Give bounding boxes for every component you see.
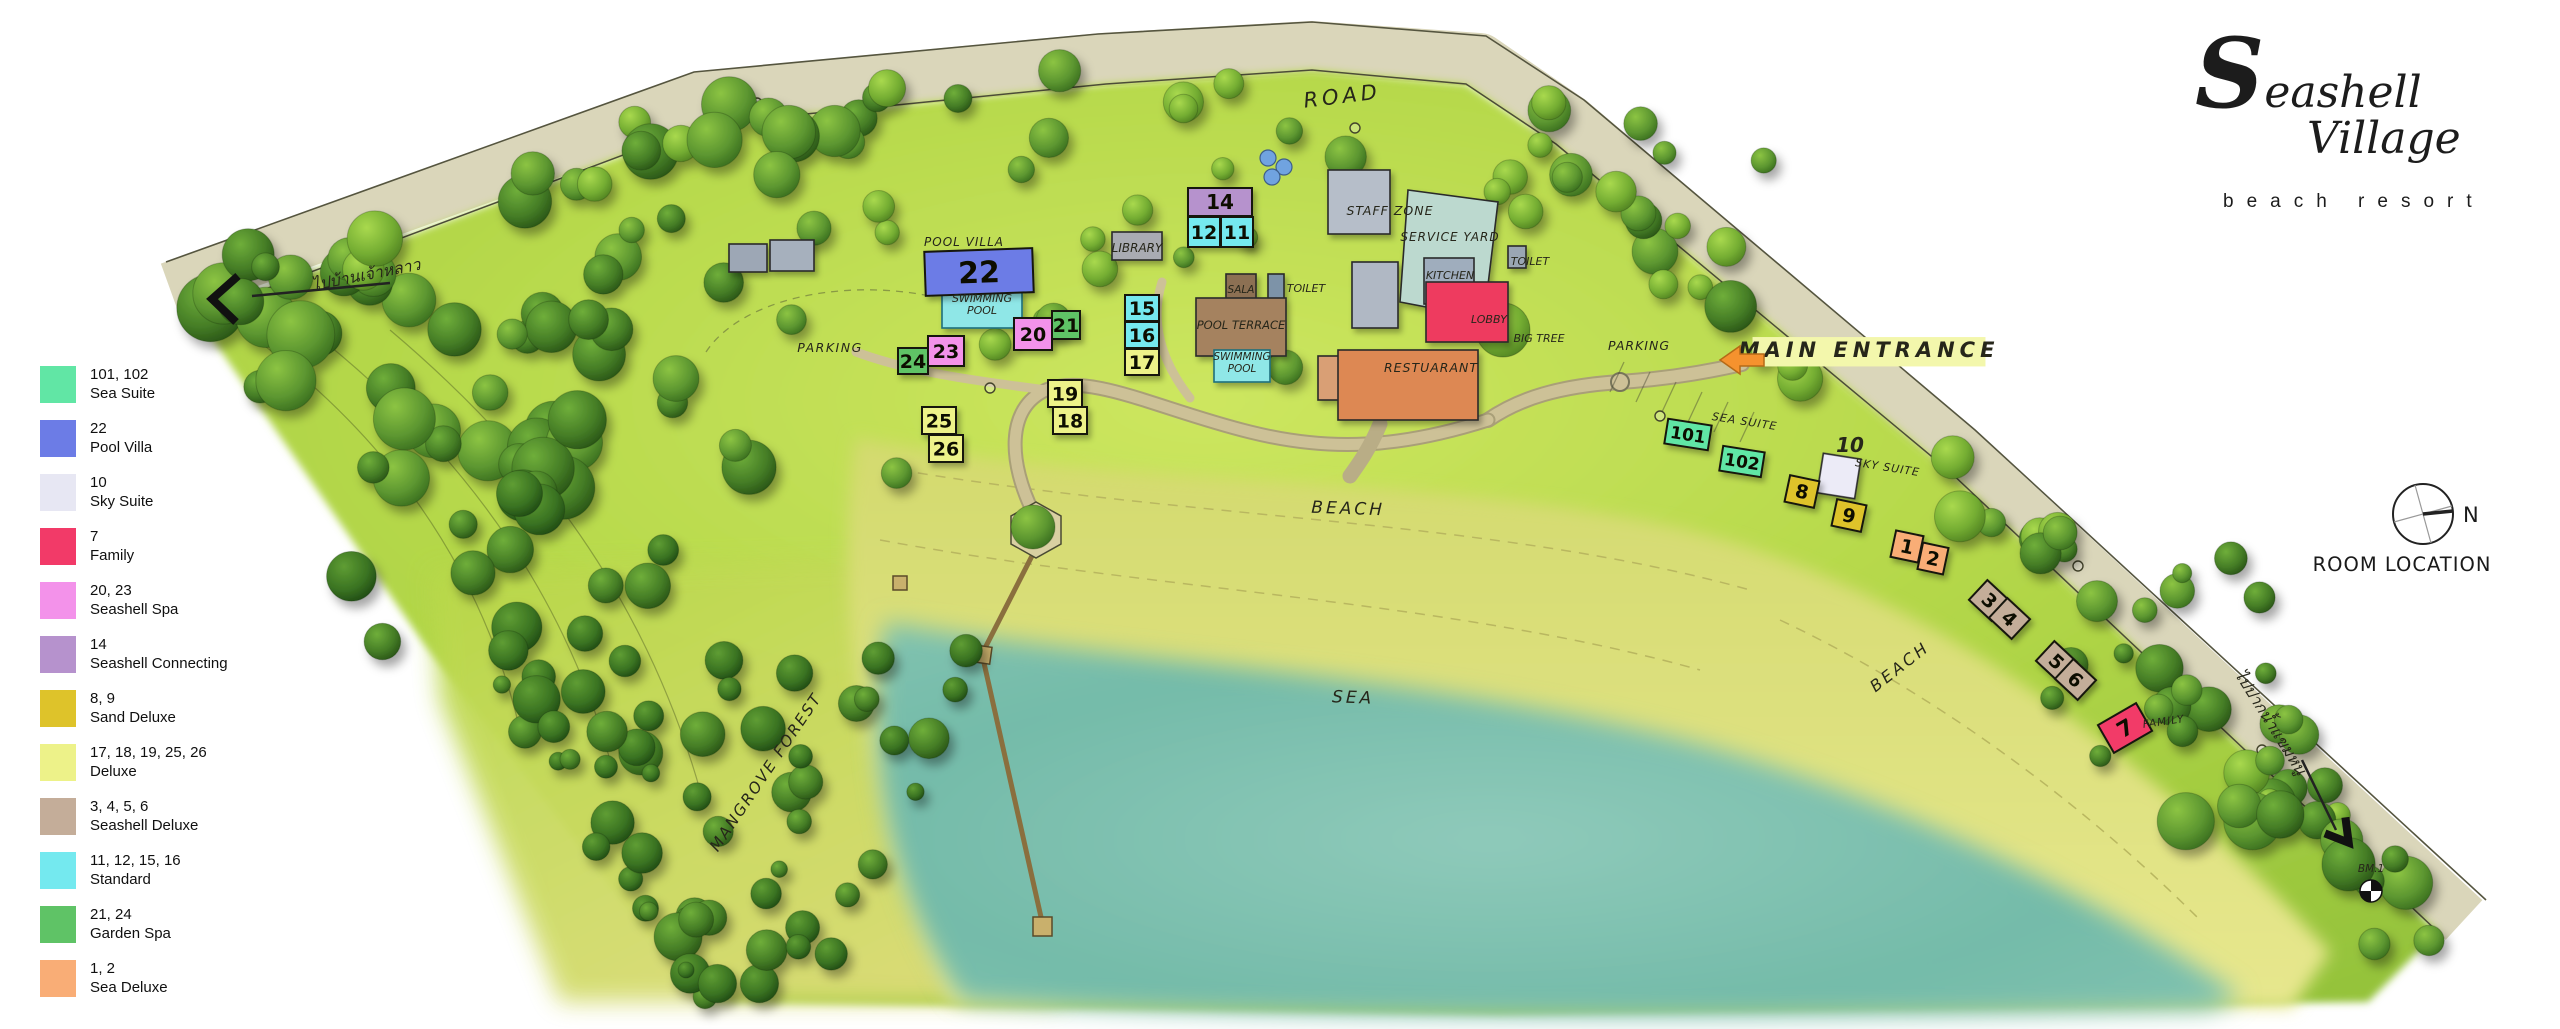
svg-text:POOL TERRACE: POOL TERRACE bbox=[1197, 318, 1286, 332]
tree bbox=[907, 783, 924, 800]
legend-item-sand-deluxe: 8, 9Sand Deluxe bbox=[40, 690, 228, 727]
tree bbox=[786, 935, 811, 960]
legend-room-numbers: 3, 4, 5, 6 bbox=[90, 798, 198, 817]
tree bbox=[489, 631, 529, 671]
legend-swatch bbox=[40, 636, 76, 673]
legend-room-type: Sea Suite bbox=[90, 385, 155, 404]
tree bbox=[642, 764, 660, 782]
room-number-label: 20 bbox=[1020, 324, 1046, 346]
legend-room-numbers: 1, 2 bbox=[90, 960, 168, 979]
svg-text:MAIN ENTRANCE: MAIN ENTRANCE bbox=[1739, 338, 2000, 362]
tree bbox=[358, 452, 390, 484]
tree bbox=[648, 535, 679, 566]
tree bbox=[569, 300, 609, 340]
label-toilet-west: TOILET bbox=[1287, 282, 1327, 295]
tree bbox=[1169, 94, 1198, 123]
room-25: 25 bbox=[922, 407, 956, 434]
label-pool-terrace: POOL TERRACE bbox=[1197, 318, 1286, 332]
room-1: 1 bbox=[1890, 530, 1923, 562]
tree bbox=[1665, 213, 1691, 239]
room-12: 12 bbox=[1188, 217, 1220, 247]
tree bbox=[1276, 118, 1302, 144]
label-pool-villa: POOL VILLA bbox=[924, 235, 1004, 249]
tree bbox=[2215, 542, 2248, 575]
legend: 101, 102Sea Suite22Pool Villa10Sky Suite… bbox=[40, 366, 228, 1014]
label-sea: SEA bbox=[1332, 687, 1375, 708]
tree bbox=[687, 112, 742, 167]
room-number-label: 26 bbox=[933, 438, 959, 460]
legend-swatch bbox=[40, 852, 76, 889]
tree bbox=[577, 167, 612, 202]
tree bbox=[1081, 227, 1106, 252]
legend-swatch bbox=[40, 528, 76, 565]
room-number-label: 12 bbox=[1191, 222, 1217, 244]
tree bbox=[327, 552, 377, 602]
tree bbox=[2041, 686, 2064, 709]
tree bbox=[493, 676, 510, 693]
room-17: 17 bbox=[1125, 349, 1159, 375]
tree bbox=[2307, 768, 2342, 803]
legend-room-type: Family bbox=[90, 547, 134, 566]
map-caption: ROOM LOCATION bbox=[2313, 553, 2492, 576]
tree bbox=[511, 152, 554, 195]
svg-text:SEA: SEA bbox=[1332, 687, 1375, 708]
room-number-label: 23 bbox=[933, 341, 959, 363]
tree bbox=[657, 205, 685, 233]
resort-map-page: 2224232021191825261412111516171011028912… bbox=[0, 0, 2560, 1029]
room-18: 18 bbox=[1053, 407, 1087, 434]
room-number-label: 18 bbox=[1057, 410, 1083, 432]
room-15: 15 bbox=[1125, 295, 1159, 321]
svg-text:LOBBY: LOBBY bbox=[1471, 313, 1508, 326]
legend-item-family: 7Family bbox=[40, 528, 228, 565]
tree bbox=[2114, 644, 2133, 663]
tree bbox=[548, 391, 606, 449]
svg-text:SALA: SALA bbox=[1228, 284, 1255, 296]
tree bbox=[2172, 675, 2203, 706]
room-number-label: 19 bbox=[1052, 383, 1078, 405]
tree bbox=[979, 329, 1011, 361]
facility-restaurant-annex bbox=[1318, 356, 1340, 400]
tree bbox=[451, 551, 495, 595]
tree bbox=[854, 687, 879, 712]
tree bbox=[1508, 194, 1543, 229]
tree bbox=[2173, 564, 2192, 583]
tree bbox=[683, 783, 711, 811]
tree bbox=[584, 255, 623, 294]
legend-room-type: Seashell Connecting bbox=[90, 655, 228, 674]
legend-swatch bbox=[40, 798, 76, 835]
tree bbox=[497, 319, 527, 349]
room-number-label: 25 bbox=[926, 410, 952, 432]
svg-text:PARKING: PARKING bbox=[1608, 338, 1670, 353]
driveway-circle bbox=[1611, 373, 1629, 391]
label-parking-east: PARKING bbox=[1608, 338, 1670, 353]
tree bbox=[1653, 141, 1676, 164]
room-16: 16 bbox=[1125, 322, 1159, 348]
tree bbox=[1039, 50, 1081, 92]
tree bbox=[2257, 791, 2304, 838]
tree bbox=[567, 616, 603, 652]
legend-item-seashell-connecting: 14Seashell Connecting bbox=[40, 636, 228, 673]
room-24: 24 bbox=[898, 348, 928, 374]
tree bbox=[560, 749, 580, 769]
facility-lobby bbox=[1426, 282, 1508, 342]
tree bbox=[678, 962, 694, 978]
tree bbox=[1931, 436, 1974, 479]
tree bbox=[754, 152, 800, 198]
tree bbox=[2255, 663, 2276, 684]
room-20: 20 bbox=[1014, 318, 1052, 350]
svg-text:POOL VILLA: POOL VILLA bbox=[924, 235, 1004, 249]
tree bbox=[862, 642, 894, 674]
tree bbox=[1029, 118, 1068, 157]
legend-swatch bbox=[40, 420, 76, 457]
label-lobby: LOBBY bbox=[1471, 313, 1508, 326]
tree bbox=[256, 351, 316, 411]
tree bbox=[347, 211, 402, 266]
legend-swatch bbox=[40, 906, 76, 943]
tree bbox=[526, 301, 577, 352]
svg-text:TOILET: TOILET bbox=[1511, 255, 1551, 268]
tree bbox=[252, 253, 280, 281]
room-23: 23 bbox=[928, 336, 964, 366]
room-number-label: 17 bbox=[1129, 352, 1155, 374]
legend-swatch bbox=[40, 960, 76, 997]
tree bbox=[625, 563, 670, 608]
logo-wordmark-village: Village bbox=[2307, 117, 2535, 161]
resort-logo: Seashell Village beach resort bbox=[2195, 48, 2535, 213]
tree bbox=[1596, 171, 1637, 212]
tree bbox=[2090, 745, 2111, 766]
room-number-label: 21 bbox=[1053, 315, 1079, 337]
tree bbox=[771, 861, 788, 878]
label-parking-west: PARKING bbox=[797, 340, 863, 355]
label-restaurant: RESTUARANT bbox=[1384, 360, 1478, 375]
tree bbox=[815, 938, 847, 970]
tree bbox=[1649, 270, 1678, 299]
deck-tree bbox=[1011, 505, 1055, 549]
tree bbox=[950, 634, 983, 667]
legend-swatch bbox=[40, 582, 76, 619]
facility-storage-a bbox=[729, 244, 767, 272]
tree bbox=[622, 131, 661, 170]
legend-item-standard: 11, 12, 15, 16Standard bbox=[40, 852, 228, 889]
room-11: 11 bbox=[1221, 217, 1253, 247]
room-22: 22 bbox=[924, 248, 1033, 296]
svg-text:TOILET: TOILET bbox=[1287, 282, 1327, 295]
facility-back-of-house bbox=[1352, 262, 1398, 328]
label-toilet-east: TOILET bbox=[1511, 255, 1551, 268]
legend-room-numbers: 11, 12, 15, 16 bbox=[90, 852, 181, 871]
tree bbox=[1173, 247, 1194, 268]
legend-room-numbers: 8, 9 bbox=[90, 690, 176, 709]
label-main-entrance: MAIN ENTRANCE bbox=[1739, 337, 2000, 366]
compass-north-label: N bbox=[2463, 503, 2479, 527]
tree bbox=[582, 833, 610, 861]
room-9: 9 bbox=[1832, 499, 1867, 532]
tree bbox=[1707, 227, 1746, 266]
label-beach-central: BEACH bbox=[1311, 498, 1385, 521]
room-102: 102 bbox=[1719, 446, 1764, 477]
tree bbox=[561, 670, 605, 714]
legend-room-numbers: 7 bbox=[90, 528, 134, 547]
svg-text:RESTUARANT: RESTUARANT bbox=[1384, 360, 1478, 375]
room-19: 19 bbox=[1048, 380, 1082, 407]
label-library: LIBRARY bbox=[1112, 241, 1164, 255]
tree bbox=[776, 655, 812, 691]
tree bbox=[777, 305, 807, 335]
tree bbox=[909, 718, 950, 759]
tree bbox=[2244, 582, 2275, 613]
tree bbox=[680, 712, 725, 757]
label-service-yard: SERVICE YARD bbox=[1400, 230, 1499, 244]
tree bbox=[2043, 516, 2077, 550]
tree bbox=[789, 765, 823, 799]
legend-item-deluxe: 17, 18, 19, 25, 26Deluxe bbox=[40, 744, 228, 781]
tree bbox=[746, 930, 787, 971]
logo-tagline: beach resort bbox=[2223, 191, 2535, 213]
room-14: 14 bbox=[1188, 188, 1252, 216]
tree bbox=[497, 471, 543, 517]
legend-swatch bbox=[40, 474, 76, 511]
label-kitchen: KITCHEN bbox=[1426, 269, 1474, 282]
tree bbox=[836, 883, 860, 907]
legend-room-numbers: 101, 102 bbox=[90, 366, 155, 385]
tree bbox=[472, 375, 508, 411]
tree bbox=[595, 755, 618, 778]
facility-staff-zone-building bbox=[1328, 170, 1390, 234]
tree bbox=[1008, 156, 1034, 182]
svg-text:BEACH: BEACH bbox=[1311, 498, 1385, 521]
legend-item-seashell-deluxe: 3, 4, 5, 6Seashell Deluxe bbox=[40, 798, 228, 835]
tree bbox=[538, 711, 570, 743]
legend-swatch bbox=[40, 366, 76, 403]
tree bbox=[1935, 491, 1986, 542]
tree bbox=[943, 677, 968, 702]
legend-room-numbers: 10 bbox=[90, 474, 153, 493]
legend-room-type: Standard bbox=[90, 871, 181, 890]
svg-text:BM.1: BM.1 bbox=[2358, 863, 2384, 875]
tree bbox=[863, 191, 895, 223]
tree bbox=[719, 429, 751, 461]
room-21: 21 bbox=[1052, 311, 1080, 339]
room-number-label: 11 bbox=[1224, 222, 1250, 244]
room-26: 26 bbox=[929, 435, 963, 462]
svg-text:LIBRARY: LIBRARY bbox=[1112, 241, 1164, 255]
tree bbox=[787, 809, 812, 834]
tree bbox=[2132, 598, 2157, 623]
tree bbox=[718, 677, 741, 700]
tree bbox=[944, 85, 972, 113]
tree bbox=[2359, 928, 2390, 959]
tree bbox=[1751, 148, 1776, 173]
legend-room-numbers: 21, 24 bbox=[90, 906, 171, 925]
site-plan-map: 2224232021191825261412111516171011028912… bbox=[0, 0, 2560, 1029]
benchmark-icon bbox=[2360, 880, 2382, 902]
tree bbox=[1212, 158, 1234, 180]
svg-text:10: 10 bbox=[1836, 433, 1864, 457]
tree bbox=[1122, 195, 1152, 225]
svg-text:SERVICE YARD: SERVICE YARD bbox=[1400, 230, 1499, 244]
legend-room-numbers: 22 bbox=[90, 420, 152, 439]
legend-room-type: Pool Villa bbox=[90, 439, 152, 458]
tree bbox=[634, 701, 664, 731]
tree bbox=[2414, 925, 2444, 955]
legend-room-type: Deluxe bbox=[90, 763, 207, 782]
logo-wordmark-seashell: Seashell bbox=[2195, 48, 2535, 115]
tree bbox=[880, 726, 909, 755]
tree bbox=[587, 711, 628, 752]
tree bbox=[1552, 162, 1582, 192]
tree bbox=[705, 642, 743, 680]
room-number-label: 24 bbox=[900, 351, 926, 373]
tree bbox=[698, 964, 736, 1002]
tree bbox=[428, 303, 481, 356]
tree bbox=[622, 833, 663, 874]
legend-room-type: Seashell Deluxe bbox=[90, 817, 198, 836]
label-benchmark: BM.1 bbox=[2358, 863, 2384, 875]
room-8: 8 bbox=[1785, 475, 1820, 508]
tree bbox=[2077, 581, 2118, 622]
legend-room-numbers: 14 bbox=[90, 636, 228, 655]
legend-room-type: Seashell Spa bbox=[90, 601, 178, 620]
facility-storage-b bbox=[770, 240, 814, 271]
legend-item-sky-suite: 10Sky Suite bbox=[40, 474, 228, 511]
tree bbox=[2382, 846, 2409, 873]
legend-room-numbers: 17, 18, 19, 25, 26 bbox=[90, 744, 207, 763]
legend-swatch bbox=[40, 744, 76, 781]
tree bbox=[2157, 793, 2214, 850]
room-number-label: 16 bbox=[1129, 325, 1155, 347]
legend-swatch bbox=[40, 690, 76, 727]
tree bbox=[639, 902, 658, 921]
tree bbox=[1624, 107, 1658, 141]
tree bbox=[868, 70, 905, 107]
legend-item-sea-suite: 101, 102Sea Suite bbox=[40, 366, 228, 403]
tree bbox=[373, 388, 435, 450]
tree bbox=[609, 645, 641, 677]
tree bbox=[619, 217, 644, 242]
label-big-tree: BIG TREE bbox=[1513, 332, 1564, 345]
legend-room-type: Sea Deluxe bbox=[90, 979, 168, 998]
legend-room-type: Sand Deluxe bbox=[90, 709, 176, 728]
legend-room-type: Sky Suite bbox=[90, 493, 153, 512]
legend-item-seashell-spa: 20, 23Seashell Spa bbox=[40, 582, 228, 619]
room-2: 2 bbox=[1917, 543, 1948, 575]
legend-item-sea-deluxe: 1, 2Sea Deluxe bbox=[40, 960, 228, 997]
tree bbox=[364, 623, 401, 660]
svg-text:PARKING: PARKING bbox=[797, 340, 863, 355]
facility-sky-suite-building bbox=[1817, 453, 1861, 498]
tree bbox=[751, 878, 782, 909]
tree bbox=[1528, 133, 1553, 158]
svg-text:KITCHEN: KITCHEN bbox=[1426, 269, 1474, 282]
room-number-label: 22 bbox=[958, 255, 1001, 291]
compass: N ROOM LOCATION bbox=[2313, 484, 2492, 576]
legend-item-pool-villa: 22Pool Villa bbox=[40, 420, 228, 457]
label-sala: SALA bbox=[1228, 284, 1255, 296]
svg-text:BIG TREE: BIG TREE bbox=[1513, 332, 1564, 345]
room-number-label: 15 bbox=[1129, 298, 1155, 320]
room-number-label: 14 bbox=[1206, 190, 1234, 214]
tree bbox=[2218, 784, 2262, 828]
svg-text:STAFF ZONE: STAFF ZONE bbox=[1347, 203, 1434, 218]
tree bbox=[1532, 86, 1566, 120]
tree bbox=[588, 568, 623, 603]
tree bbox=[881, 458, 912, 489]
label-room-10-number: 10 bbox=[1836, 433, 1864, 457]
tree bbox=[653, 356, 699, 402]
tree bbox=[875, 220, 899, 244]
tree bbox=[1214, 69, 1244, 99]
legend-room-numbers: 20, 23 bbox=[90, 582, 178, 601]
legend-room-type: Garden Spa bbox=[90, 925, 171, 944]
tree bbox=[1705, 281, 1757, 333]
tree bbox=[762, 105, 815, 158]
tree bbox=[449, 510, 477, 538]
tree bbox=[858, 850, 887, 879]
label-staff-zone: STAFF ZONE bbox=[1347, 203, 1434, 218]
tree bbox=[679, 902, 714, 937]
legend-item-garden-spa: 21, 24Garden Spa bbox=[40, 906, 228, 943]
